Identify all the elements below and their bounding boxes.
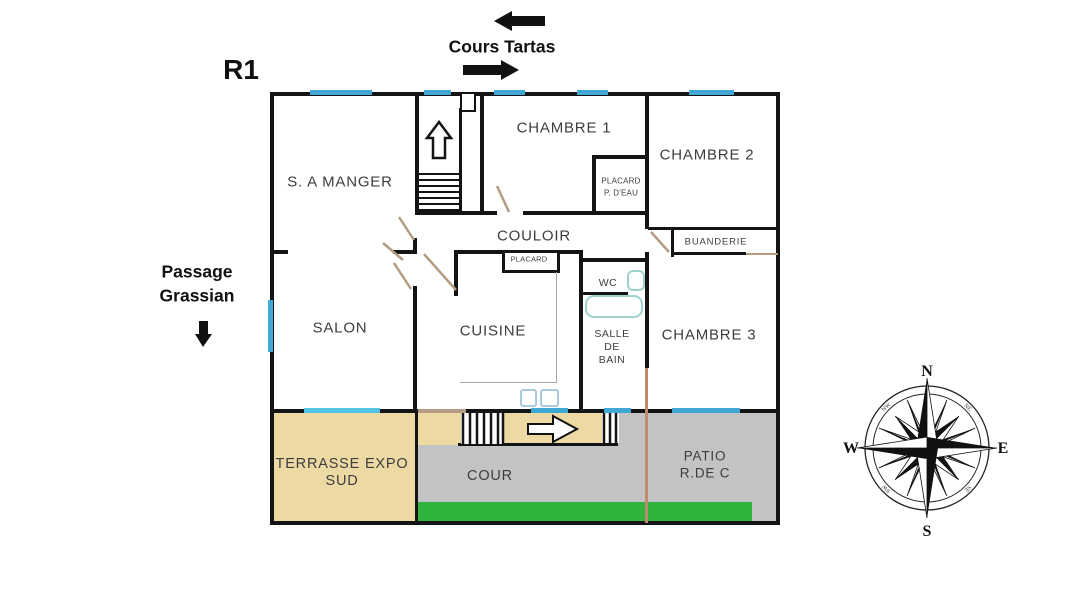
room-label-laundry: BUANDERIE: [685, 237, 748, 248]
room-label-kitchen: CUISINE: [460, 323, 526, 340]
floorplan-canvas: N S E W NE SE SW NW R1 Cours Tartas Pass…: [0, 0, 1080, 595]
compass-n-label: N: [921, 363, 933, 380]
room-label-bedroom2: CHAMBRE 2: [660, 147, 755, 164]
stairs-up-arrow-icon: [427, 122, 451, 158]
room-label-closet-bed1-line2: P. D'EAU: [604, 189, 638, 198]
room-label-closet-bed1-line1: PLACARD: [601, 177, 640, 186]
area-label-patio-line1: PATIO: [684, 449, 727, 464]
area-label-patio-line2: R.DE C: [680, 466, 731, 481]
street-label-top: Cours Tartas: [449, 37, 556, 58]
area-label-terrace-line2: SUD: [325, 473, 358, 489]
area-label-terrace-line1: TERRASSE EXPO: [276, 456, 409, 472]
area-label-courtyard: COUR: [467, 468, 513, 484]
room-label-wc: WC: [599, 277, 618, 289]
room-label-bathroom-line2: DE: [604, 341, 620, 353]
street-label-left-line2: Grassian: [160, 286, 235, 307]
street-label-left-line1: Passage: [161, 262, 232, 283]
room-label-living: SALON: [313, 320, 368, 337]
compass-w-label: W: [843, 440, 859, 457]
room-label-dining: S. A MANGER: [287, 174, 393, 191]
walkway-arrow-icon: [528, 416, 577, 442]
arrow-down-icon: [195, 321, 212, 347]
room-label-bedroom3: CHAMBRE 3: [662, 327, 757, 344]
compass-e-label: E: [998, 440, 1009, 457]
room-label-bathroom-line3: BAIN: [599, 354, 626, 366]
room-label-bathroom-line1: SALLE: [594, 328, 629, 340]
arrow-left-icon: [494, 11, 545, 31]
room-label-closet-corridor: PLACARD: [511, 255, 548, 264]
floor-label: R1: [223, 54, 259, 86]
compass-rose-icon: N S E W NE SE SW NW: [843, 363, 1008, 540]
staircase-treads: [419, 174, 459, 210]
arrow-right-icon: [463, 60, 519, 80]
compass-nw-label: NW: [881, 402, 893, 414]
room-label-corridor: COULOIR: [497, 228, 571, 245]
compass-s-label: S: [923, 523, 932, 540]
room-label-bedroom1: CHAMBRE 1: [517, 120, 612, 137]
